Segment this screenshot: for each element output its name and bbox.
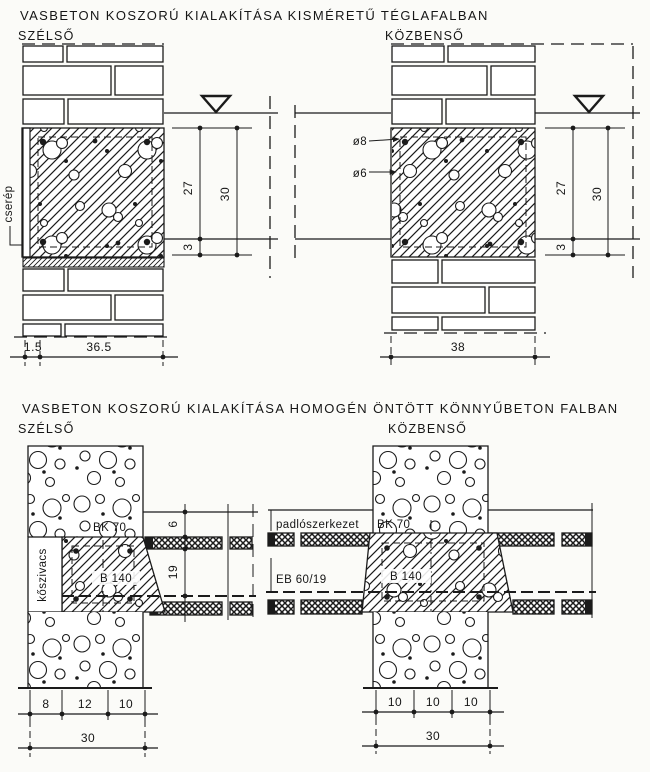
brick-courses-above-beam	[392, 46, 535, 124]
brick	[68, 99, 163, 124]
wall-block-label: BK 70	[93, 522, 126, 534]
dim-30: 30	[426, 729, 440, 743]
dim-10b: 10	[426, 695, 440, 709]
brick	[392, 317, 438, 330]
dim-tick-dot	[106, 712, 111, 717]
wall-block-label: BK 70	[377, 519, 410, 531]
top-middle-detail-label: KÖZBENSŐ	[385, 28, 464, 43]
dim-tick-dot	[161, 355, 166, 360]
dim-tick-dot	[198, 253, 203, 258]
beam-label: B 140	[390, 571, 422, 583]
dim-10c: 10	[464, 695, 478, 709]
brick-courses-below-beam	[392, 260, 535, 330]
dim-27: 27	[181, 181, 195, 195]
brick	[491, 66, 535, 95]
dim-tick-dot	[235, 253, 240, 258]
insulation-strip: kőszivacs	[28, 537, 62, 612]
brick	[115, 66, 163, 95]
right-dimension-group: 27 30 3	[164, 96, 278, 278]
brick	[23, 295, 111, 320]
strip-end-cap	[268, 600, 275, 614]
brick	[115, 295, 163, 320]
dim-tick-dot	[28, 712, 33, 717]
dim-tick-dot	[374, 744, 379, 749]
brick	[392, 260, 438, 283]
dim-tick-dot	[183, 510, 188, 515]
brick	[68, 269, 163, 291]
dim-30: 30	[590, 187, 604, 201]
dim-tick-dot	[235, 126, 240, 131]
screed-strip	[230, 537, 252, 549]
ceiling-strip	[230, 602, 252, 615]
slab-label: EB 60/19	[276, 574, 327, 586]
level-triangle-icon	[575, 96, 603, 112]
dim-tick-dot	[606, 253, 611, 258]
brick	[392, 99, 442, 124]
edge-tile-upstand	[23, 128, 30, 257]
lightweight-wall-lower	[373, 612, 488, 688]
brick	[489, 287, 535, 313]
dim-tick-dot	[28, 746, 33, 751]
tile-annotation: cserép	[3, 186, 23, 245]
dim-12: 12	[78, 697, 92, 711]
dim-tick-dot	[183, 594, 188, 599]
ring-beam	[22, 128, 164, 257]
beam-aggregate	[30, 128, 164, 257]
dim-3: 3	[181, 243, 195, 250]
dim-tick-dot	[143, 712, 148, 717]
dim-27: 27	[554, 181, 568, 195]
tile-leader-line	[10, 226, 23, 245]
brick	[23, 66, 111, 95]
brick-courses-below-beam	[23, 269, 163, 336]
dim-tick-dot	[488, 710, 493, 715]
dim-6: 6	[166, 520, 180, 527]
floor-label: padlószerkezet	[276, 519, 359, 531]
dim-tick-dot	[488, 744, 493, 749]
tile-formwork-strip	[23, 258, 164, 267]
ring-beam: B 140	[362, 520, 513, 620]
brick	[23, 99, 64, 124]
dim-tick-dot	[389, 355, 394, 360]
dim-tick-dot	[412, 710, 417, 715]
brick	[23, 46, 63, 62]
dim-tick-dot	[450, 710, 455, 715]
dim-tick-dot	[38, 355, 43, 360]
brick	[392, 287, 485, 313]
rebar-top-label: ø8	[353, 136, 367, 148]
dim-tick-dot	[571, 237, 576, 242]
tile-label: cserép	[3, 186, 15, 223]
lightweight-wall-lower	[28, 612, 143, 688]
dim-tick-dot	[60, 712, 65, 717]
ceiling-strip	[301, 600, 362, 614]
construction-detail-drawing: VASBETON KOSZORÚ KIALAKÍTÁSA KISMÉRETŰ T…	[0, 0, 650, 772]
bottom-dimension-group: 38	[380, 336, 550, 366]
bottom-section: VASBETON KOSZORÚ KIALAKÍTÁSA HOMOGÉN ÖNT…	[18, 401, 619, 757]
bottom-dimension-group: 8 12 10 30	[18, 690, 158, 757]
dim-3: 3	[554, 243, 568, 250]
dim-tick-dot	[606, 126, 611, 131]
strip-end-cap	[585, 533, 592, 546]
brick	[392, 66, 487, 95]
bottom-dimension-group: 10 10 10 30	[362, 690, 504, 754]
bottom-middle-detail-label: KÖZBENSŐ	[388, 421, 467, 436]
bottom-dimension-group: 1.5 36.5	[10, 340, 178, 366]
dim-36-5: 36.5	[86, 340, 111, 354]
brick	[392, 46, 444, 62]
beam-label: B 140	[100, 573, 132, 585]
strip-end-cap	[585, 600, 592, 614]
screed-strip	[301, 533, 373, 546]
bottom-middle-detail: padlószerkezet BK 70	[266, 446, 596, 754]
top-section-title: VASBETON KOSZORÚ KIALAKÍTÁSA KISMÉRETŰ T…	[20, 8, 489, 23]
dim-tick-dot	[183, 535, 188, 540]
left-reference-lines	[295, 105, 391, 262]
brick	[446, 99, 535, 124]
dim-19: 19	[166, 565, 180, 579]
technical-drawing-page: VASBETON KOSZORÚ KIALAKÍTÁSA KISMÉRETŰ T…	[0, 0, 650, 772]
strip-end-cap	[268, 533, 275, 546]
dim-tick-dot	[198, 126, 203, 131]
dim-30: 30	[218, 187, 232, 201]
dim-tick-dot	[143, 746, 148, 751]
beam-aggregate	[392, 128, 535, 257]
brick	[442, 317, 535, 330]
ring-beam	[391, 128, 535, 257]
brick	[23, 324, 61, 336]
brick	[23, 269, 64, 291]
dim-10a: 10	[388, 695, 402, 709]
brick	[65, 324, 163, 336]
dim-8: 8	[42, 697, 49, 711]
dim-tick-dot	[183, 547, 188, 552]
dim-1-5: 1.5	[24, 340, 42, 354]
insulation-label: kőszivacs	[37, 548, 49, 601]
ceiling-strip	[513, 600, 554, 614]
dim-tick-dot	[533, 355, 538, 360]
top-middle-detail: ø8 ø6	[295, 44, 640, 366]
brick	[442, 260, 535, 283]
top-edge-detail: cserép 27 30 3	[3, 44, 278, 366]
top-edge-detail-label: SZÉLSŐ	[18, 28, 75, 43]
bottom-section-title: VASBETON KOSZORÚ KIALAKÍTÁSA HOMOGÉN ÖNT…	[22, 401, 619, 416]
dim-tick-dot	[23, 355, 28, 360]
dim-tick-dot	[374, 710, 379, 715]
bottom-edge-detail: BK 70 B 140	[18, 446, 258, 757]
brick-courses-above-beam	[23, 46, 163, 124]
dim-tick-dot	[198, 237, 203, 242]
brick	[67, 46, 163, 62]
dim-10: 10	[119, 697, 133, 711]
dim-30: 30	[81, 731, 95, 745]
dim-tick-dot	[571, 253, 576, 258]
top-section: VASBETON KOSZORÚ KIALAKÍTÁSA KISMÉRETŰ T…	[3, 8, 640, 366]
dim-tick-dot	[571, 126, 576, 131]
brick	[448, 46, 535, 62]
bottom-edge-detail-label: SZÉLSŐ	[18, 421, 75, 436]
dim-38: 38	[451, 340, 465, 354]
level-triangle-icon	[202, 96, 230, 112]
right-dimension-group: 27 30 3	[535, 46, 640, 278]
rebar-bottom-label: ø6	[353, 168, 367, 180]
